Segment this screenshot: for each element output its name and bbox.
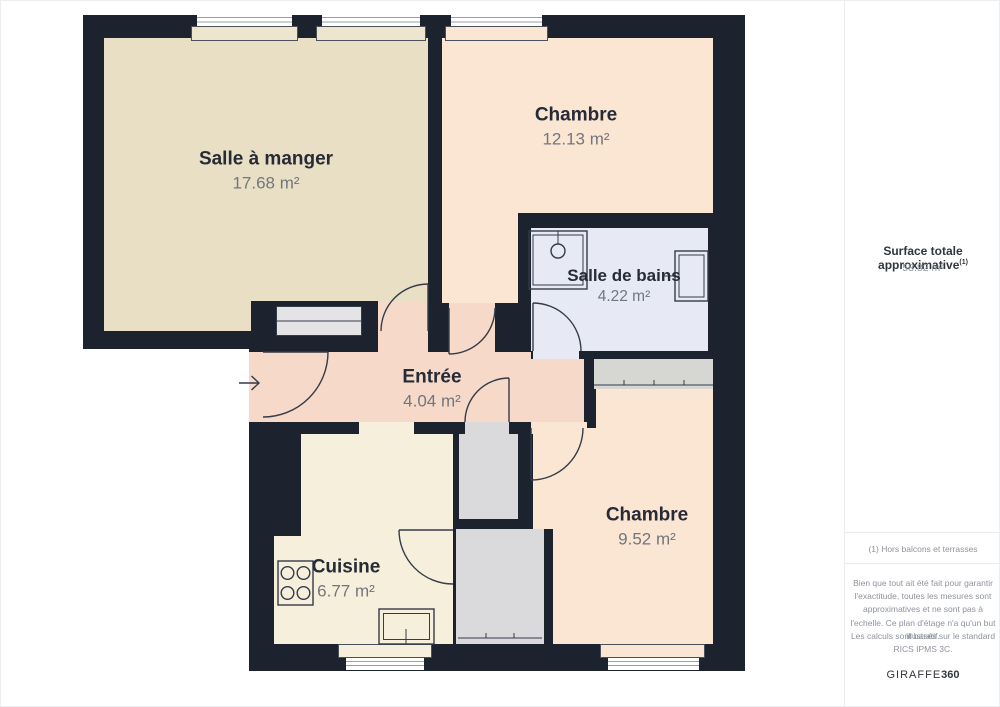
room-label-chambre-12: Chambre 12.13 m²	[535, 104, 617, 151]
room-area: 12.13 m²	[535, 128, 617, 150]
room-label-salle-de-bains: Salle de bains 4.22 m²	[567, 265, 680, 307]
room-label-cuisine: Cuisine 6.77 m²	[312, 556, 381, 603]
room-area: 9.52 m²	[606, 528, 688, 550]
room-area: 4.04 m²	[402, 390, 461, 412]
opening-chambre-12	[449, 303, 495, 352]
room-label-salle-a-manger: Salle à manger 17.68 m²	[199, 148, 333, 195]
room-name: Entrée	[402, 366, 461, 391]
brand-suffix: 360	[941, 669, 959, 681]
summary-sidebar: Surface totale approximative(1) 58.82 m²…	[844, 1, 1000, 707]
room-name: Cuisine	[312, 556, 381, 581]
window-glass-top-3	[451, 13, 542, 26]
window-sill-top-3	[445, 26, 548, 41]
window-glass-top-2	[322, 13, 420, 26]
window-sill-bottom-2	[600, 644, 705, 658]
divider	[845, 563, 1000, 564]
closet-2	[456, 529, 544, 644]
brand-name: GIRAFFE	[886, 669, 941, 681]
giraffe360-logo: GIRAFFE360	[845, 669, 1000, 681]
window-glass-bottom-2	[608, 658, 699, 670]
room-salle-a-manger-ext	[104, 301, 251, 331]
floorplan-page: Salle à manger 17.68 m² Chambre 12.13 m²…	[0, 0, 1000, 707]
room-area: 6.77 m²	[312, 580, 381, 602]
wardrobe-chambre-9	[594, 359, 713, 389]
room-chambre-9-ext-lower	[553, 529, 596, 644]
window-sill-top-2	[316, 26, 426, 41]
room-name: Salle de bains	[567, 265, 680, 287]
room-name: Chambre	[535, 104, 617, 129]
room-name: Salle à manger	[199, 148, 333, 173]
room-chambre-12-strip	[442, 213, 518, 303]
room-label-chambre-9: Chambre 9.52 m²	[606, 504, 688, 551]
window-sill-bottom-1	[338, 644, 432, 658]
room-entree-right	[518, 359, 584, 422]
floor-plan: Salle à manger 17.68 m² Chambre 12.13 m²…	[1, 1, 844, 707]
room-name: Chambre	[606, 504, 688, 529]
opening-closet-1	[465, 422, 509, 434]
standard-text: Les calculs sont basés sur le standard R…	[847, 630, 999, 656]
interior-window	[276, 306, 362, 336]
room-area: 17.68 m²	[199, 172, 333, 194]
closet-1	[459, 434, 518, 519]
total-area-value: 58.82 m²	[845, 262, 1000, 274]
room-cuisine	[301, 434, 453, 644]
divider	[845, 532, 1000, 533]
footnote-text: (1) Hors balcons et terrasses	[845, 544, 1000, 554]
room-chambre-9-ext-upper	[533, 428, 596, 529]
window-glass-top-1	[197, 13, 292, 26]
opening-salle-de-bains	[533, 351, 579, 359]
window-glass-bottom-1	[346, 658, 424, 670]
room-entree	[249, 352, 531, 422]
room-cuisine-ext	[274, 536, 301, 644]
window-sill-top-1	[191, 26, 298, 41]
opening-salle-a-manger	[378, 301, 428, 352]
opening-cuisine	[359, 422, 414, 434]
room-label-entree: Entrée 4.04 m²	[402, 366, 461, 413]
room-area: 4.22 m²	[567, 287, 680, 307]
opening-chambre-9	[531, 422, 587, 434]
